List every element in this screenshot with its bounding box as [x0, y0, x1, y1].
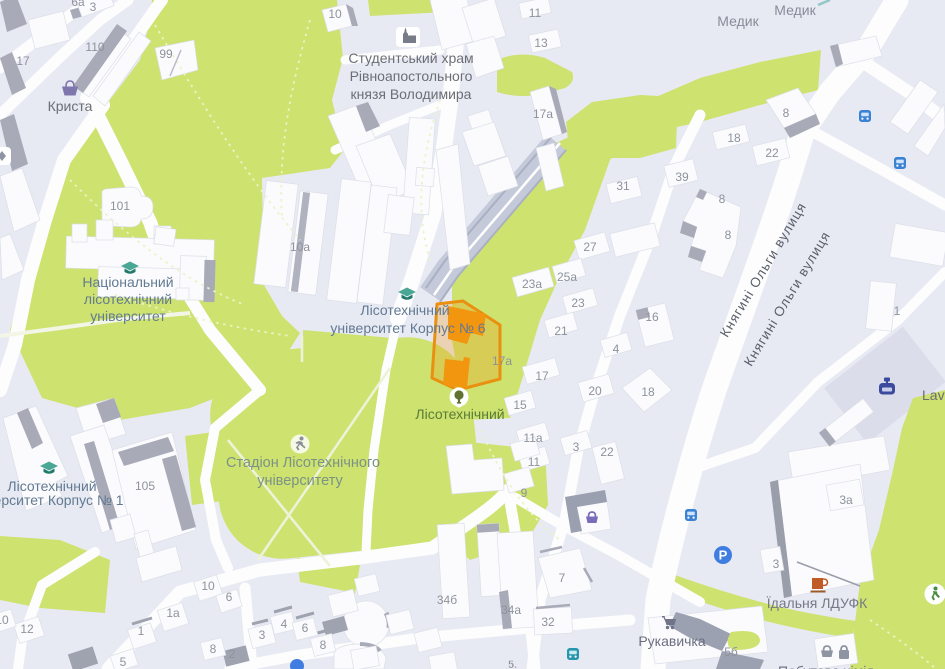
- svg-text:4: 4: [281, 617, 288, 631]
- svg-text:22: 22: [765, 146, 779, 160]
- svg-text:11a: 11a: [523, 431, 542, 445]
- svg-text:3: 3: [773, 557, 780, 571]
- svg-text:6: 6: [226, 590, 233, 604]
- svg-text:99: 99: [159, 47, 173, 61]
- svg-text:Рукавичка: Рукавичка: [638, 633, 706, 649]
- svg-text:5б: 5б: [724, 645, 738, 659]
- svg-text:4: 4: [613, 342, 620, 356]
- svg-text:11: 11: [528, 455, 541, 469]
- svg-text:Стадіон Лісотехнічного: Стадіон Лісотехнічного: [226, 455, 380, 471]
- svg-text:34a: 34a: [501, 603, 521, 617]
- svg-text:11: 11: [529, 6, 542, 20]
- svg-text:P: P: [719, 548, 728, 563]
- svg-text:3: 3: [573, 440, 580, 454]
- svg-text:Медик: Медик: [717, 13, 759, 29]
- svg-text:8: 8: [725, 228, 732, 242]
- svg-text:17a: 17a: [533, 107, 553, 121]
- svg-text:1: 1: [138, 624, 145, 638]
- svg-text:101: 101: [110, 199, 130, 213]
- svg-text:7: 7: [559, 571, 566, 585]
- svg-text:17: 17: [16, 54, 30, 68]
- svg-text:Їдальня ЛДУФК: Їдальня ЛДУФК: [767, 595, 868, 611]
- svg-text:Рівноапостольного: Рівноапостольного: [350, 68, 473, 84]
- svg-text:Lavazza: Lavazza: [922, 387, 945, 403]
- svg-text:6a: 6a: [71, 0, 85, 9]
- svg-text:Національний: Національний: [82, 274, 173, 290]
- svg-text:105: 105: [135, 479, 155, 493]
- svg-text:Побутова хімія: Побутова хімія: [778, 663, 874, 669]
- svg-text:10: 10: [328, 7, 342, 21]
- svg-text:17a: 17a: [492, 354, 512, 368]
- svg-text:18: 18: [641, 385, 655, 399]
- svg-text:університету: університету: [257, 473, 343, 489]
- svg-text:5.: 5.: [508, 659, 517, 669]
- svg-text:1: 1: [894, 304, 901, 318]
- svg-text:10a: 10a: [290, 240, 310, 254]
- svg-text:20: 20: [588, 384, 602, 398]
- svg-text:3: 3: [259, 628, 266, 642]
- svg-text:5: 5: [120, 655, 127, 669]
- svg-text:10: 10: [201, 579, 215, 593]
- svg-text:Лісотехнічний: Лісотехнічний: [360, 302, 449, 318]
- svg-text:8: 8: [320, 638, 327, 652]
- svg-text:3: 3: [90, 0, 97, 14]
- svg-text:31: 31: [616, 179, 630, 193]
- svg-text:110: 110: [85, 40, 104, 54]
- svg-text:18: 18: [727, 131, 741, 145]
- svg-text:23a: 23a: [522, 277, 542, 291]
- svg-text:39: 39: [675, 170, 689, 184]
- svg-text:8: 8: [783, 106, 790, 120]
- svg-text:10: 10: [0, 613, 9, 627]
- svg-text:13: 13: [534, 36, 548, 50]
- svg-text:8: 8: [210, 642, 217, 656]
- svg-text:22: 22: [600, 445, 614, 459]
- svg-text:34б: 34б: [437, 593, 457, 607]
- svg-text:12: 12: [20, 622, 34, 636]
- svg-text:Лісотехнічний: Лісотехнічний: [415, 406, 504, 422]
- svg-text:1a: 1a: [166, 606, 180, 620]
- svg-text:8: 8: [719, 192, 726, 206]
- svg-text:університет Корпус № 1: університет Корпус № 1: [0, 492, 124, 508]
- svg-text:Криста: Криста: [48, 98, 93, 114]
- svg-text:Студентський храм: Студентський храм: [348, 50, 473, 66]
- svg-text:15: 15: [513, 398, 527, 412]
- svg-text:23: 23: [571, 296, 585, 310]
- svg-text:21: 21: [554, 324, 568, 338]
- svg-text:університет Корпус № 6: університет Корпус № 6: [330, 320, 485, 336]
- svg-text:3a: 3a: [839, 493, 853, 507]
- svg-text:князя Володимира: князя Володимира: [351, 86, 472, 102]
- svg-text:Медик: Медик: [774, 2, 816, 18]
- svg-text:лісотехнічний: лісотехнічний: [84, 291, 172, 307]
- svg-text:27: 27: [583, 240, 597, 254]
- svg-text:32: 32: [541, 615, 555, 629]
- svg-text:17: 17: [535, 369, 549, 383]
- svg-text:9: 9: [521, 486, 528, 500]
- svg-text:університет: університет: [90, 308, 166, 324]
- svg-text:2: 2: [229, 647, 236, 661]
- svg-text:16: 16: [645, 310, 659, 324]
- svg-text:6: 6: [302, 621, 309, 635]
- svg-text:25a: 25a: [557, 270, 577, 284]
